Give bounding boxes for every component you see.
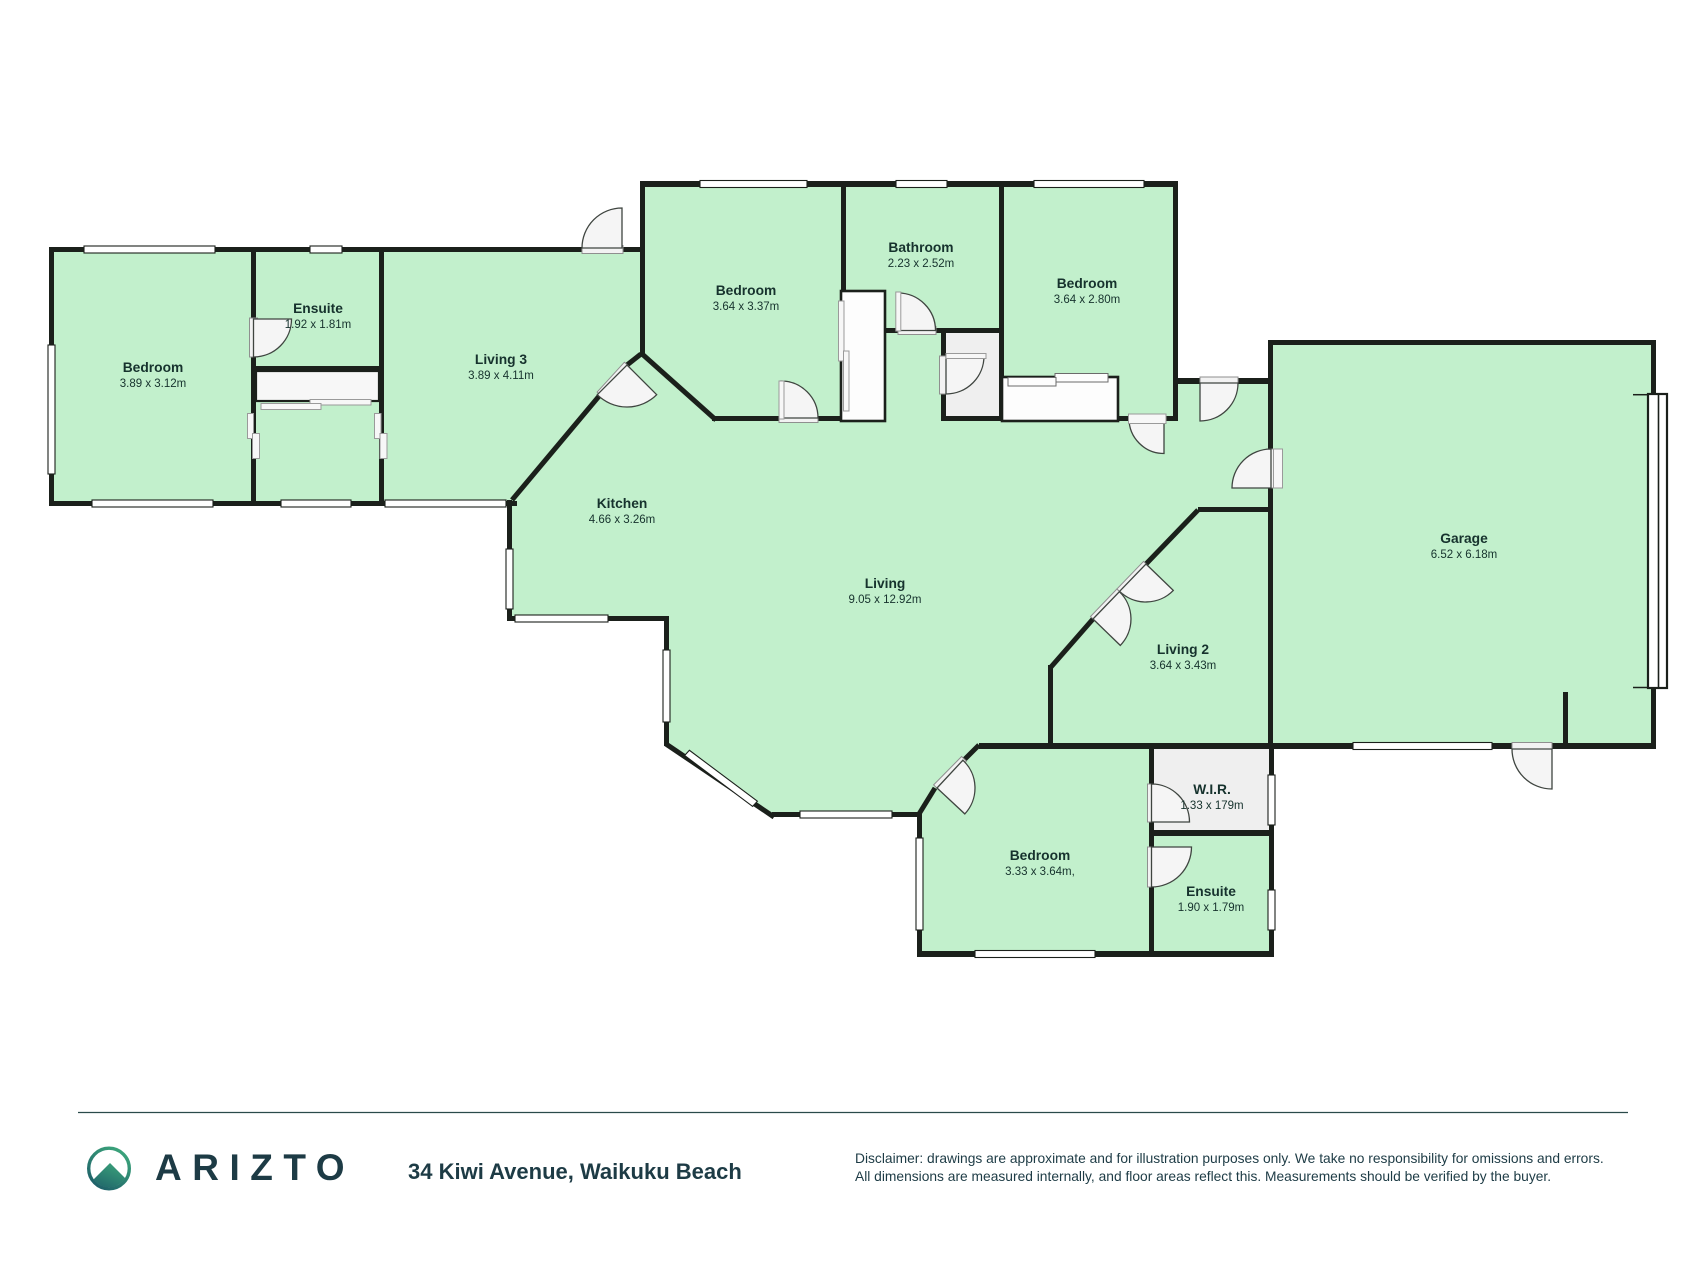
svg-text:1.90 x 1.79m: 1.90 x 1.79m [1178, 902, 1244, 914]
svg-text:Living 2: Living 2 [1157, 642, 1209, 657]
svg-text:Bedroom: Bedroom [1010, 848, 1071, 863]
svg-text:34 Kiwi Avenue, Waikuku Beach: 34 Kiwi Avenue, Waikuku Beach [408, 1159, 742, 1184]
svg-text:Ensuite: Ensuite [1186, 884, 1236, 899]
svg-text:6.52 x 6.18m: 6.52 x 6.18m [1431, 549, 1497, 561]
svg-text:3.89 x 3.12m: 3.89 x 3.12m [120, 378, 186, 390]
svg-text:2.23 x 2.52m: 2.23 x 2.52m [888, 258, 954, 270]
svg-text:9.05 x 12.92m: 9.05 x 12.92m [849, 594, 922, 606]
svg-text:4.66 x 3.26m: 4.66 x 3.26m [589, 514, 655, 526]
svg-text:3.33 x 3.64m,: 3.33 x 3.64m, [1005, 866, 1075, 878]
svg-text:Bathroom: Bathroom [888, 240, 953, 255]
svg-text:3.64 x 3.37m: 3.64 x 3.37m [713, 301, 779, 313]
svg-text:Living: Living [865, 576, 906, 591]
svg-text:1.33 x 179m: 1.33 x 179m [1180, 800, 1243, 812]
svg-text:Living 3: Living 3 [475, 352, 527, 367]
svg-text:W.I.R.: W.I.R. [1193, 782, 1231, 797]
svg-text:Ensuite: Ensuite [293, 301, 343, 316]
svg-text:Kitchen: Kitchen [597, 496, 648, 511]
svg-text:All dimensions are measured in: All dimensions are measured internally, … [855, 1169, 1551, 1184]
svg-text:3.89 x 4.11m: 3.89 x 4.11m [468, 370, 534, 382]
svg-text:3.64 x 2.80m: 3.64 x 2.80m [1054, 294, 1120, 306]
svg-text:1.92 x 1.81m: 1.92 x 1.81m [285, 319, 351, 331]
svg-text:Garage: Garage [1440, 531, 1488, 546]
svg-text:ARIZTO: ARIZTO [155, 1147, 355, 1188]
svg-text:Disclaimer: drawings are appro: Disclaimer: drawings are approximate and… [855, 1151, 1604, 1166]
svg-text:Bedroom: Bedroom [716, 283, 777, 298]
svg-text:Bedroom: Bedroom [123, 360, 184, 375]
svg-text:3.64 x 3.43m: 3.64 x 3.43m [1150, 660, 1216, 672]
svg-text:Bedroom: Bedroom [1057, 276, 1118, 291]
